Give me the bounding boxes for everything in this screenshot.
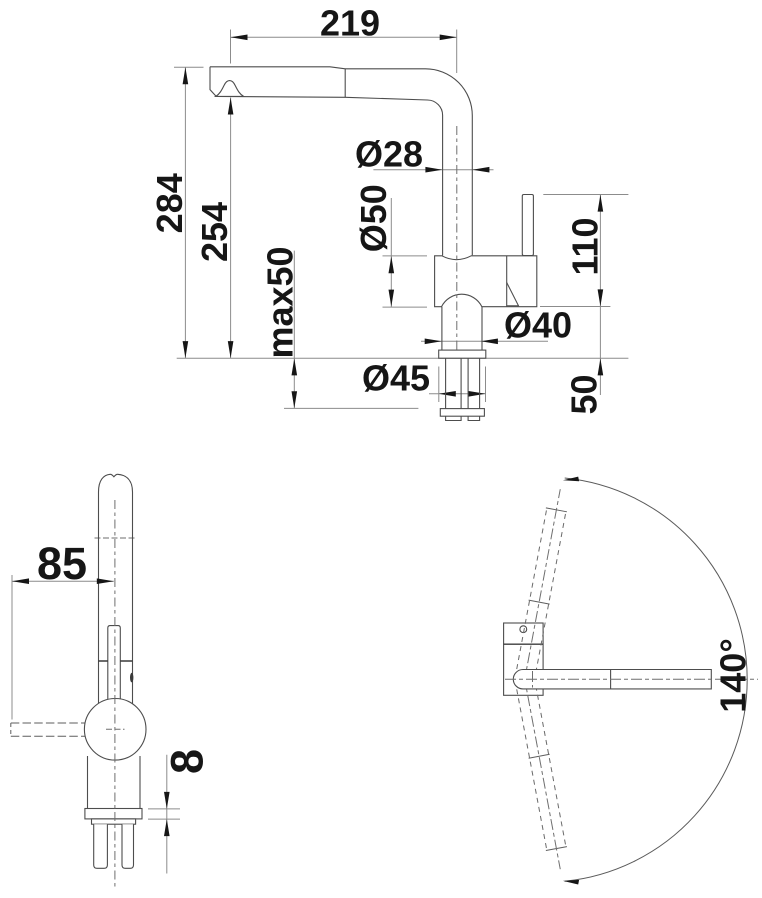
svg-text:Ø50: Ø50 [353, 184, 394, 252]
svg-text:Ø40: Ø40 [504, 305, 572, 346]
svg-text:140°: 140° [713, 638, 754, 712]
svg-text:50: 50 [564, 374, 605, 414]
svg-text:Ø45: Ø45 [362, 358, 430, 399]
svg-text:219: 219 [320, 2, 380, 43]
svg-text:284: 284 [149, 173, 190, 233]
svg-text:Ø28: Ø28 [355, 134, 423, 175]
svg-text:8: 8 [162, 749, 213, 774]
svg-text:85: 85 [37, 538, 87, 589]
svg-text:110: 110 [565, 217, 606, 275]
svg-text:254: 254 [194, 202, 235, 262]
svg-text:max50: max50 [260, 246, 301, 358]
